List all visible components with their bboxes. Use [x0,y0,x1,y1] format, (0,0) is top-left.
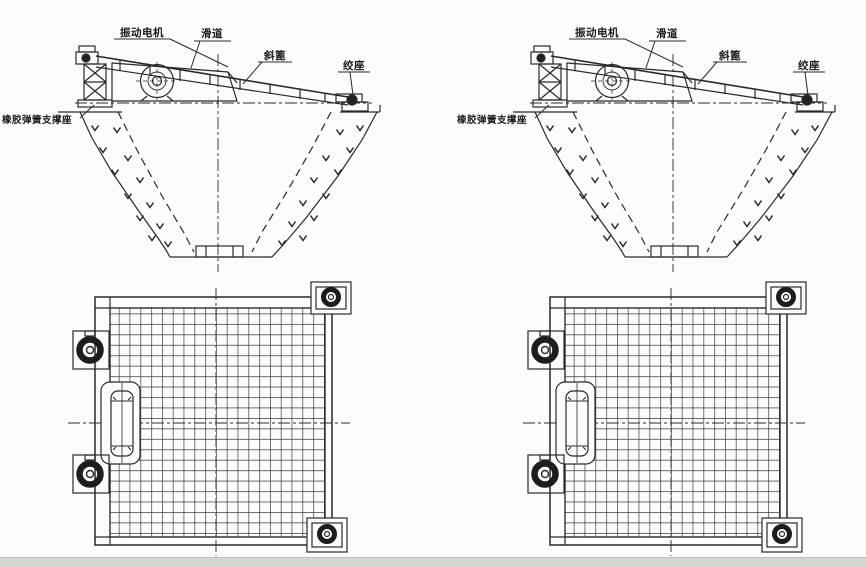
right-drawing-instance [457,26,835,556]
elevation-view: 振动电机 滑道 斜篦 绞座 橡胶弹簧支撑座 [2,26,380,272]
label-hinge-seat: 绞座 [343,59,365,72]
left-drawing: 振动电机 滑道 斜篦 绞座 橡胶弹簧支撑座 [0,0,420,558]
plan-view [68,282,351,556]
hopper-right-inner-wall [252,112,331,252]
hopper-left-outer-wall [80,112,170,257]
label-inclined-grate: 斜篦 [263,49,286,62]
label-rubber-spring-support: 橡胶弹簧支撑座 [2,114,72,126]
hopper-left-inner-wall [118,112,194,252]
spring-bracket-left-top [73,331,109,369]
hopper [58,105,380,257]
scanned-drawing-page: 振动电机 滑道 斜篦 绞座 橡胶弹簧支撑座 [0,0,866,567]
label-slideway: 滑道 [201,27,223,40]
scan-edge-band [0,557,866,567]
support-stand [76,46,112,107]
grate-grid [110,308,325,537]
hopper-hatching [92,126,364,247]
spring-bracket-right-top [311,282,351,314]
hopper-outlet [196,246,243,257]
spring-bracket-right-bottom [307,518,347,552]
label-vibration-motor: 振动电机 [120,26,164,39]
motor-mount-cutout [101,382,140,464]
label-leaders [80,39,370,118]
hopper-right-outer-wall [272,112,377,257]
right-drawing [455,0,866,558]
chute-beam [96,56,348,105]
